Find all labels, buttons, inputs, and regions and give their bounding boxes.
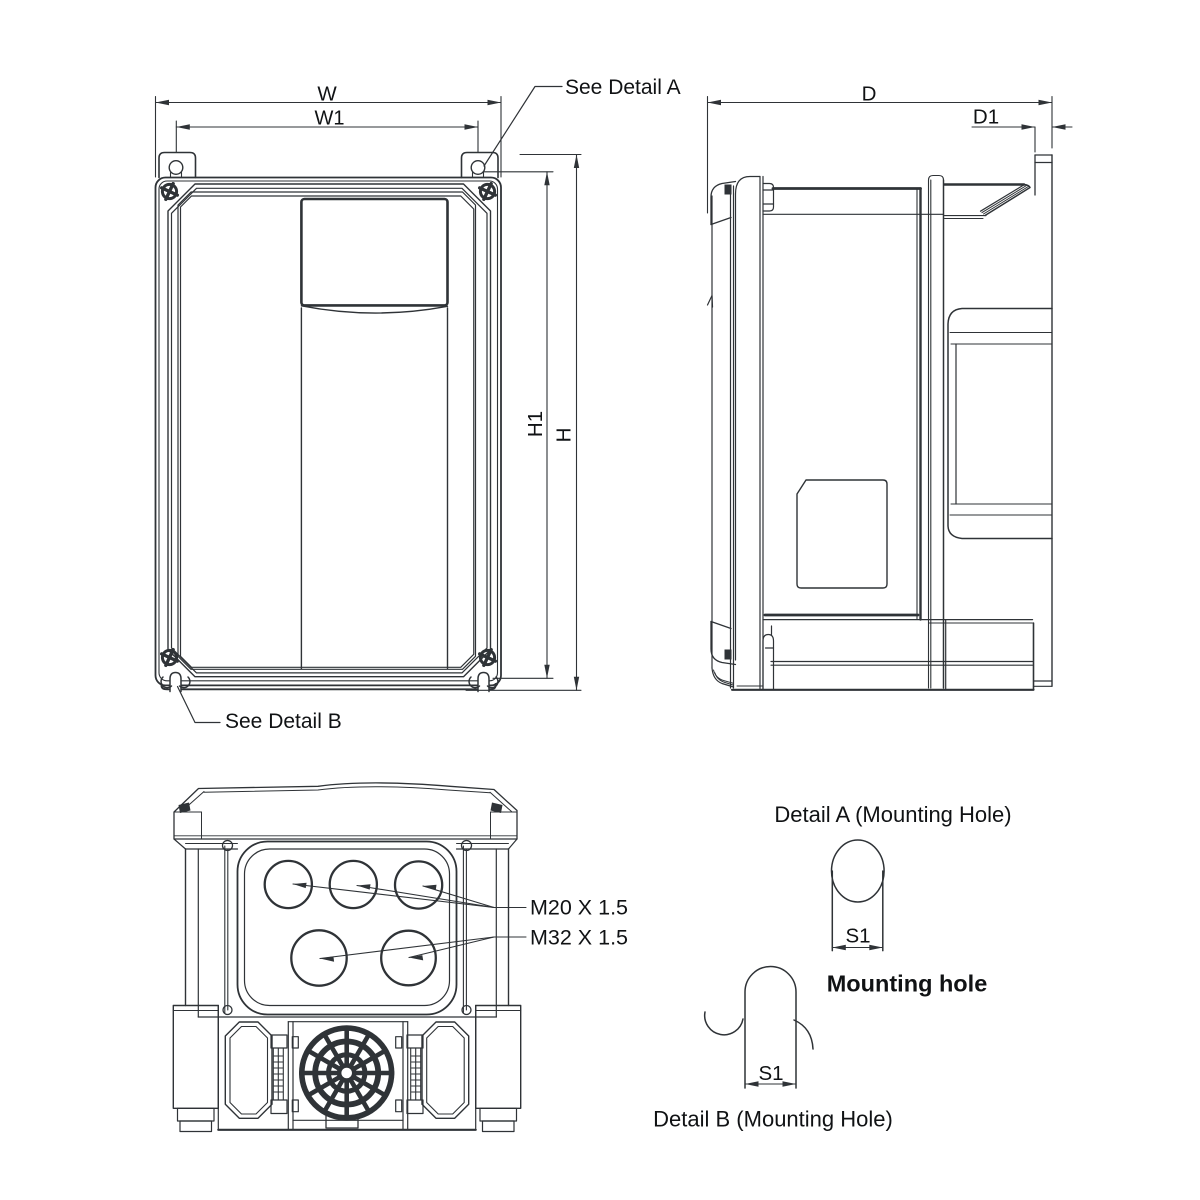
svg-text:S1: S1 [758, 1062, 783, 1085]
svg-text:See Detail B: See Detail B [225, 710, 342, 733]
svg-text:See Detail A: See Detail A [565, 76, 681, 99]
svg-text:Detail A (Mounting Hole): Detail A (Mounting Hole) [774, 802, 1011, 827]
svg-text:S1: S1 [845, 925, 870, 948]
svg-text:M32 X 1.5: M32 X 1.5 [530, 926, 628, 950]
svg-text:D: D [862, 83, 877, 106]
svg-text:D1: D1 [973, 106, 999, 129]
svg-text:Detail B (Mounting Hole): Detail B (Mounting Hole) [653, 1107, 893, 1132]
svg-text:Mounting hole: Mounting hole [827, 971, 988, 997]
svg-text:H1: H1 [524, 411, 547, 437]
svg-text:M20 X 1.5: M20 X 1.5 [530, 896, 628, 920]
svg-text:W: W [317, 83, 337, 106]
svg-text:H: H [553, 428, 576, 443]
svg-text:W1: W1 [315, 108, 345, 130]
